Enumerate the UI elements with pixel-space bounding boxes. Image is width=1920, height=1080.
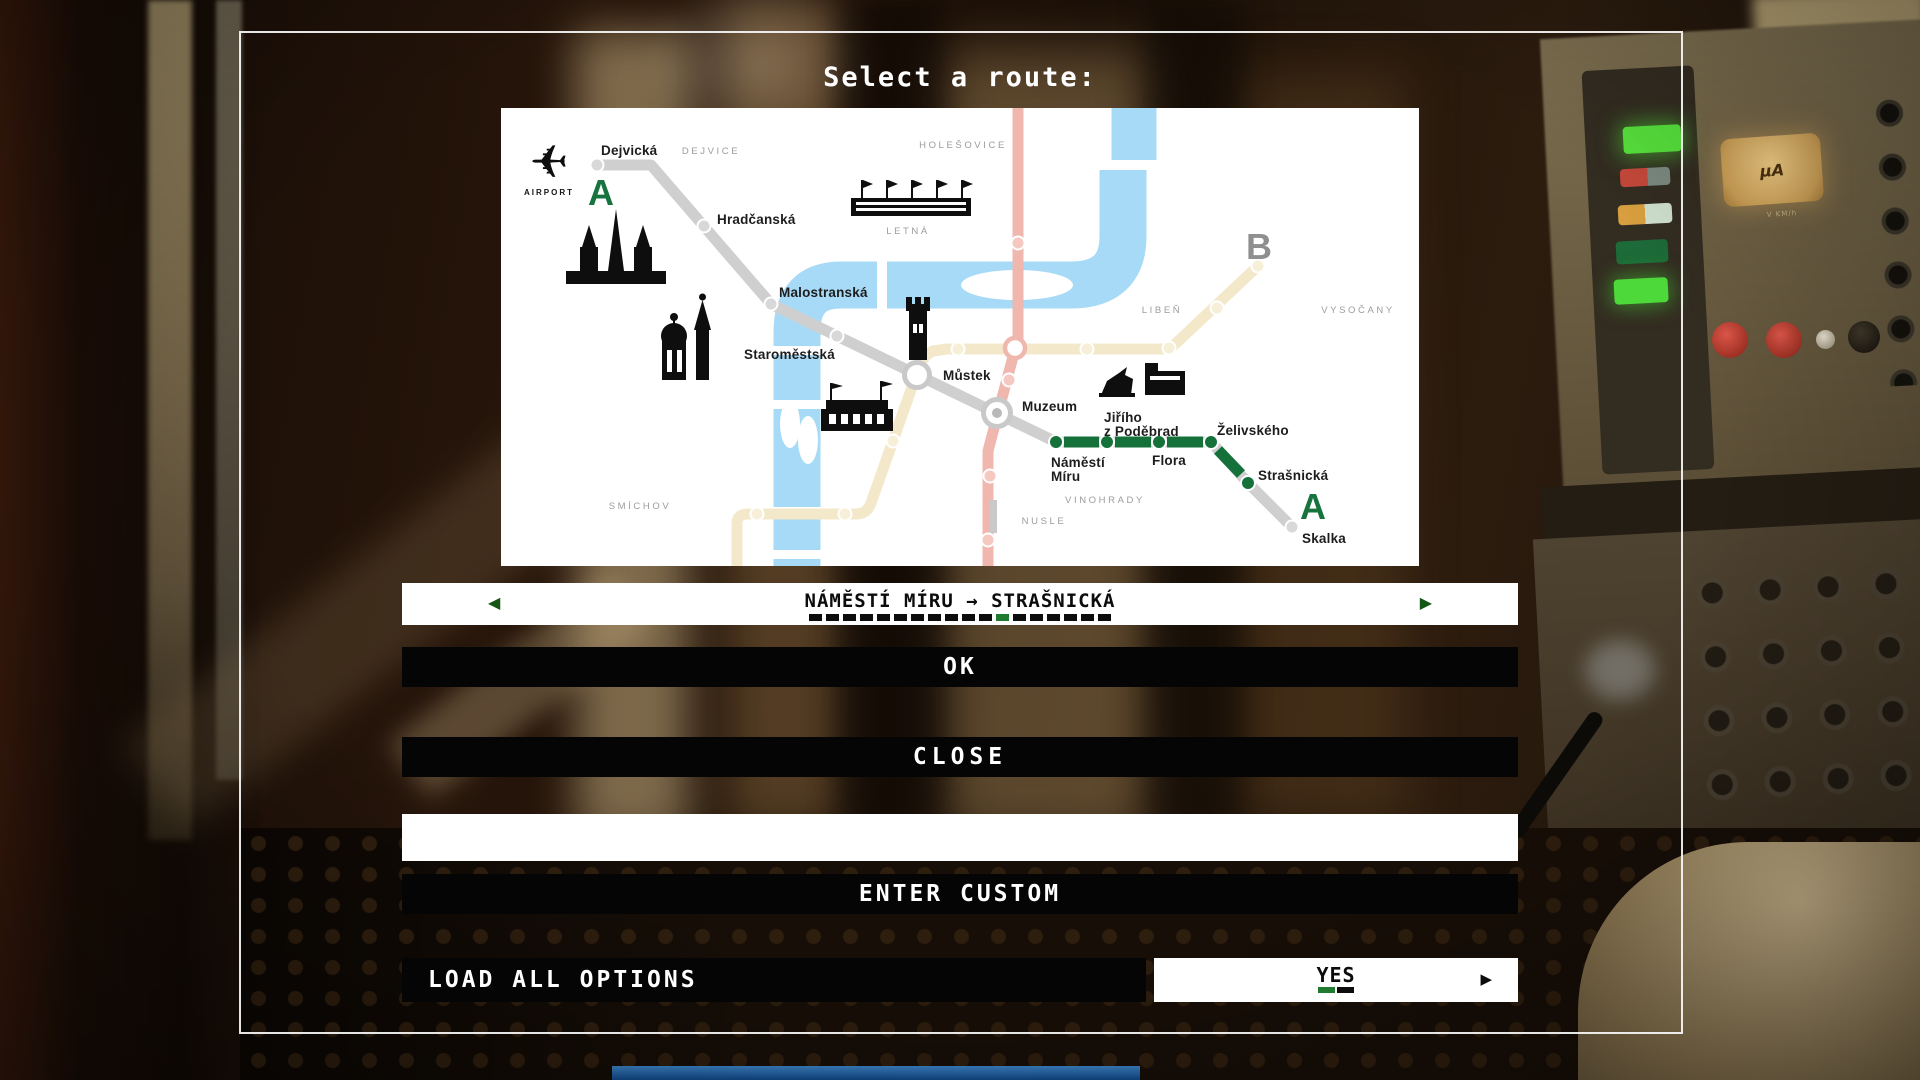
custom-route-input[interactable] xyxy=(402,814,1518,861)
bridge-tower-icon xyxy=(906,297,930,360)
game-screen: µA V KM/h Select a route: ✈DEJVICEHOLEŠO… xyxy=(0,0,1920,1080)
svg-text:Jiříhoz Poděbrad: Jiříhoz Poděbrad xyxy=(1104,410,1179,439)
ok-button[interactable]: OK xyxy=(402,647,1518,687)
toggle-value: YES xyxy=(1154,963,1518,987)
svg-text:NáměstíMíru: NáměstíMíru xyxy=(1051,455,1106,484)
svg-text:LIBEŇ: LIBEŇ xyxy=(1142,305,1182,316)
svg-text:SMÍCHOV: SMÍCHOV xyxy=(609,501,672,512)
stadium-icon xyxy=(851,180,973,216)
svg-text:A: A xyxy=(588,172,614,213)
svg-text:AIRPORT: AIRPORT xyxy=(524,188,574,197)
svg-text:Flora: Flora xyxy=(1152,453,1186,468)
svg-text:Hradčanská: Hradčanská xyxy=(717,212,796,227)
route-selector: ◀ NÁMĚSTÍ MÍRU → STRAŠNICKÁ ▶ xyxy=(402,583,1518,625)
castle-icon xyxy=(566,209,666,284)
svg-text:VYSOČANY: VYSOČANY xyxy=(1321,305,1395,316)
svg-text:Skalka: Skalka xyxy=(1302,531,1346,546)
svg-text:Želivského: Želivského xyxy=(1217,423,1289,438)
svg-text:Strašnická: Strašnická xyxy=(1258,468,1329,483)
memorial-icon xyxy=(1099,363,1185,397)
airport-icon: ✈ xyxy=(530,135,569,189)
route-progress-dashes xyxy=(402,614,1518,621)
route-value: NÁMĚSTÍ MÍRU → STRAŠNICKÁ xyxy=(402,590,1518,612)
dialog-title: Select a route: xyxy=(0,62,1920,93)
enter-custom-button[interactable]: ENTER CUSTOM xyxy=(402,874,1518,914)
church-towers-icon xyxy=(661,294,711,381)
svg-text:Malostranská: Malostranská xyxy=(779,285,868,300)
svg-text:A: A xyxy=(1300,486,1326,527)
toggle-next-arrow[interactable]: ▶ xyxy=(1480,970,1492,988)
svg-text:HOLEŠOVICE: HOLEŠOVICE xyxy=(919,140,1007,151)
svg-text:NUSLE: NUSLE xyxy=(1022,516,1067,527)
metro-map: ✈DEJVICEHOLEŠOVICELETNÁLIBEŇVYSOČANYSMÍC… xyxy=(501,108,1419,566)
svg-text:Staroměstská: Staroměstská xyxy=(744,347,835,362)
metro-map-svg: ✈DEJVICEHOLEŠOVICELETNÁLIBEŇVYSOČANYSMÍC… xyxy=(501,108,1419,566)
load-options-toggle[interactable]: YES ▶ xyxy=(1154,958,1518,1002)
close-button[interactable]: CLOSE xyxy=(402,737,1518,777)
svg-text:DEJVICE: DEJVICE xyxy=(682,146,740,157)
theater-icon xyxy=(821,381,893,431)
svg-text:✈: ✈ xyxy=(530,135,569,189)
load-all-options-button[interactable]: LOAD ALL OPTIONS xyxy=(402,958,1146,1002)
svg-text:B: B xyxy=(1246,226,1272,267)
svg-text:Muzeum: Muzeum xyxy=(1022,399,1077,414)
route-next-arrow[interactable]: ▶ xyxy=(1420,593,1432,612)
svg-text:LETNÁ: LETNÁ xyxy=(886,226,930,237)
svg-text:Dejvická: Dejvická xyxy=(601,143,658,158)
svg-text:Můstek: Můstek xyxy=(943,368,991,383)
svg-text:VINOHRADY: VINOHRADY xyxy=(1065,495,1145,506)
toggle-dashes xyxy=(1154,987,1518,993)
